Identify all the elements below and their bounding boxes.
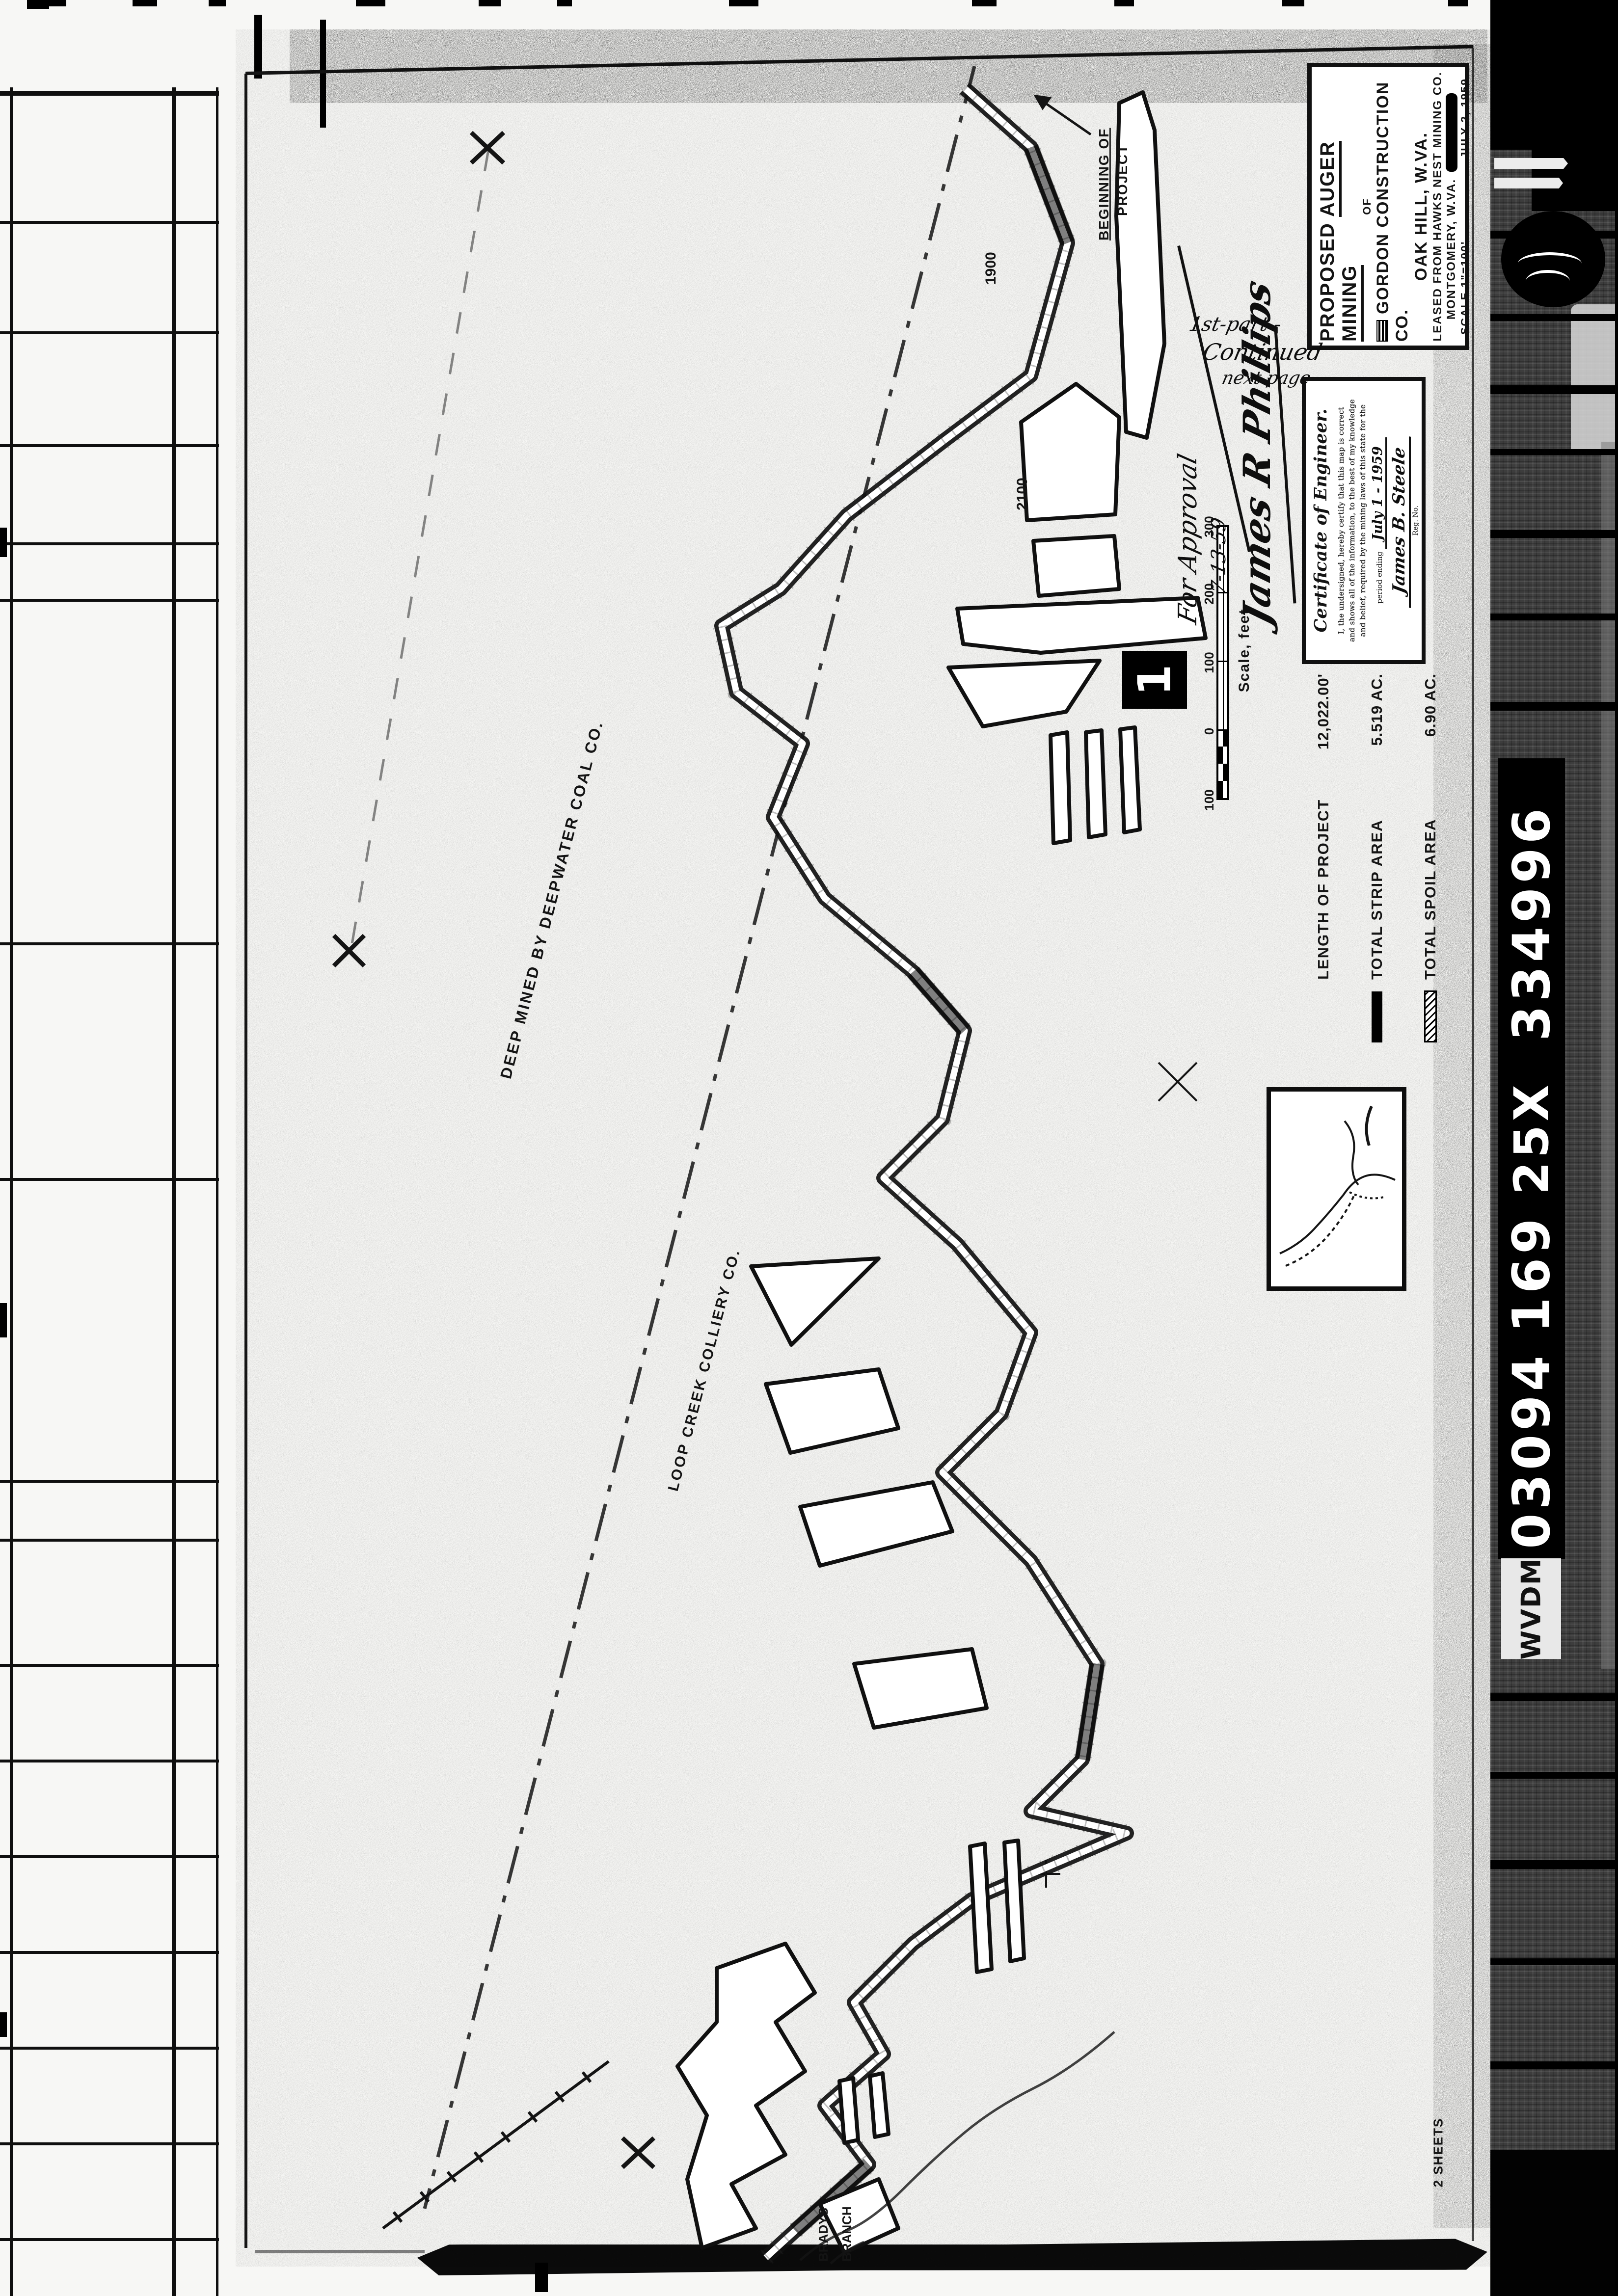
title-block: PROPOSED AUGER MINING OF GORDON CONSTRUC… [1307, 63, 1469, 350]
grid-hline [0, 1539, 219, 1542]
map-title: PROPOSED AUGER MINING [1317, 71, 1361, 342]
reel-mark-blob [1501, 211, 1605, 307]
top-edge-dash [209, 0, 226, 6]
film-white-bar [1494, 178, 1563, 188]
legend-block: LENGTH OF PROJECT 12,022.00' TOTAL STRIP… [1308, 673, 1446, 1042]
engineer-signature: James B. Steele [1389, 433, 1411, 608]
beginning-label-2: PROJECT [1115, 144, 1130, 216]
archive-code-id: 334996 [1498, 766, 1565, 1080]
certificate-heading: Certificate of Engineer. [1311, 409, 1331, 633]
top-edge-dash [1448, 0, 1468, 6]
film-edge-mark [0, 528, 7, 557]
grid-hline [0, 542, 219, 545]
grid-vline [172, 87, 176, 2296]
legend-row: TOTAL STRIP AREA 5.519 AC. [1364, 673, 1390, 1042]
beginning-label-1: BEGINNING OF [1096, 128, 1111, 240]
film-frame-bar [1490, 1693, 1618, 1701]
film-edge-mark [0, 1303, 7, 1337]
approval-note: For Approval 7-13-59 James R Phillips [1173, 231, 1303, 623]
grid-hline [0, 2238, 219, 2241]
film-frame-bar [1490, 314, 1618, 321]
microfilm-scan: BEGINNING OF PROJECT 1900 2100 DEEP MINE… [0, 0, 1618, 2296]
film-frame-bar [1490, 385, 1618, 394]
film-edge-strip: 334996 25X 169 03094 WVDM [1490, 0, 1618, 2296]
map-date: JULY 2, 1959 [1458, 78, 1472, 158]
scale-division [1218, 729, 1227, 731]
film-frame-bar [1490, 530, 1618, 538]
top-edge-dash [1114, 0, 1134, 6]
film-frame-bar [1490, 1958, 1618, 1965]
grid-vline [216, 87, 218, 2296]
film-white-bar [1494, 158, 1568, 169]
top-edge-dash [479, 0, 501, 6]
grid-hline [0, 1664, 219, 1667]
station-label: 2100 [1014, 478, 1030, 510]
corner-mark [27, 0, 49, 9]
location-inset-map [1267, 1087, 1406, 1291]
film-edge-mark [0, 2012, 7, 2037]
grid-hline [0, 444, 219, 447]
legend-row: TOTAL SPOIL AREA 6.90 AC. [1417, 673, 1444, 1042]
film-frame-bar [1490, 1860, 1618, 1869]
film-frame-bar [1490, 1772, 1618, 1779]
grid-hline [0, 91, 219, 96]
approval-signature: James R Phillips [1235, 224, 1279, 630]
engineer-reg: Reg. No. [1412, 506, 1420, 536]
grid-hline [0, 1480, 219, 1483]
grid-hline [0, 2047, 219, 2050]
grid-hline [0, 1760, 219, 1762]
scale-checker-section [1218, 729, 1227, 798]
certificate-period: period ending July 1 - 1959 [1370, 437, 1385, 604]
archive-code-mag: 25X [1498, 1085, 1565, 1190]
grid-hline [0, 1178, 219, 1181]
scale-division [1218, 661, 1227, 662]
lease-line: LEASED FROM HAWKS NEST MINING CO. [1431, 72, 1445, 342]
film-frame-bar [1490, 231, 1618, 239]
top-edge-dash [729, 0, 758, 6]
grid-hline [0, 1951, 219, 1954]
title-of: OF [1361, 198, 1374, 215]
grid-hline [0, 599, 219, 602]
film-outer-edge [1615, 0, 1618, 2296]
certificate-line: and belief, required by the mining laws … [1357, 404, 1368, 637]
company-name: GORDON CONSTRUCTION CO. [1374, 71, 1412, 342]
map-scale: SCALE 1"=100' [1458, 241, 1472, 335]
archive-agency-label: WVDM [1501, 1558, 1561, 1659]
station-label: 1900 [983, 252, 999, 285]
top-edge-dash [972, 0, 997, 6]
spoil-area-swatch [1424, 990, 1437, 1042]
film-black-zone [1490, 0, 1618, 150]
strip-area-swatch [1372, 991, 1382, 1042]
legend-row: LENGTH OF PROJECT 12,022.00' [1310, 673, 1337, 1042]
ink-blot [535, 2263, 548, 2292]
film-frame-bar [1490, 2061, 1618, 2069]
top-edge-dash [557, 0, 572, 6]
archive-code-reel: 03094 [1498, 1347, 1565, 1553]
grid-hline [0, 221, 219, 224]
period-date: July 1 - 1959 [1370, 437, 1387, 549]
scan-noise-margin [1433, 44, 1492, 2228]
film-white-patch [1571, 304, 1616, 452]
certificate-line: and shows all of the information, to the… [1347, 399, 1357, 642]
approval-date: 7-13-59 [1208, 228, 1230, 596]
sheet-number-stamp: 1 [1122, 651, 1187, 709]
sheet-count-note: 2 SHEETS [1426, 2115, 1451, 2189]
grid-hline [0, 942, 219, 945]
film-frame-bar [1490, 702, 1618, 711]
scale-date-row: SCALE 1"=100' JULY 2, 1959 [1458, 71, 1472, 342]
certificate-line: I, the undersigned, hereby certify that … [1336, 407, 1347, 634]
grid-hline [0, 331, 219, 334]
grid-vline [10, 87, 13, 2296]
top-edge-dash [1282, 0, 1304, 6]
grid-hline [0, 1855, 219, 1858]
grid-hline [0, 2142, 219, 2145]
inset-sketch [1271, 1092, 1402, 1286]
film-frame-bar [1490, 449, 1618, 455]
top-edge-dash [133, 0, 157, 6]
film-frame-bar [1490, 614, 1618, 620]
lessor-city: MONTGOMERY, W.VA. [1445, 93, 1458, 320]
redaction-bar [1446, 93, 1457, 172]
top-edge-dash [356, 0, 385, 6]
stream-label-word1: BRADYS [816, 2208, 831, 2262]
archive-code-frame: 169 [1498, 1205, 1565, 1342]
stream-label-word2: BRANCH [839, 2206, 854, 2262]
company-city: OAK HILL, W.VA. [1412, 132, 1431, 281]
film-black-zone [1490, 2150, 1618, 2296]
